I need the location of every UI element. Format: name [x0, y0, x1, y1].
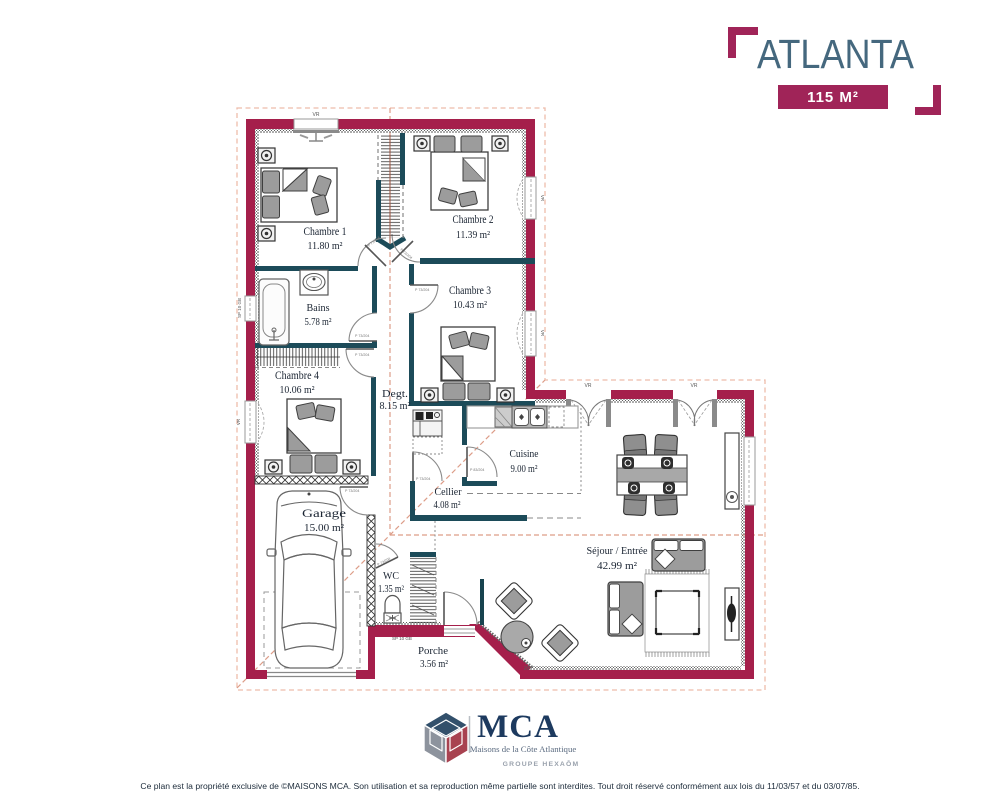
svg-text:VR: VR [691, 383, 698, 389]
svg-text:Cellier: Cellier [435, 486, 462, 498]
svg-text:10.06 m²: 10.06 m² [280, 384, 316, 396]
svg-text:1.35 m²: 1.35 m² [378, 584, 404, 595]
svg-text:VR: VR [585, 383, 592, 389]
svg-text:Degt.: Degt. [382, 388, 408, 400]
svg-text:Ce plan est la propriété exclu: Ce plan est la propriété exclusive de ©M… [140, 781, 859, 791]
svg-text:P 73/204: P 73/204 [345, 489, 359, 493]
svg-text:P 73/204: P 73/204 [355, 353, 369, 357]
svg-text:Porche: Porche [418, 645, 448, 657]
svg-text:Bains: Bains [307, 302, 330, 314]
svg-text:VR: VR [313, 112, 320, 118]
svg-text:VR: VR [540, 330, 545, 337]
svg-text:8.15 m²: 8.15 m² [380, 401, 411, 412]
svg-text:Maisons de la Côte Atlantique: Maisons de la Côte Atlantique [470, 744, 577, 754]
svg-text:VR: VR [236, 418, 241, 425]
svg-text:GROUPE HEXAŌM: GROUPE HEXAŌM [503, 760, 580, 768]
svg-text:4.08 m²: 4.08 m² [434, 500, 461, 511]
svg-text:42.99 m²: 42.99 m² [597, 561, 637, 572]
svg-text:Séjour / Entrée: Séjour / Entrée [587, 545, 648, 557]
svg-text:P 73/204: P 73/204 [416, 477, 430, 481]
svg-text:SP 10 GB: SP 10 GB [392, 636, 412, 641]
svg-text:Chambre 2: Chambre 2 [453, 212, 494, 226]
svg-text:Chambre 1: Chambre 1 [304, 224, 347, 238]
svg-text:P 73/204: P 73/204 [415, 288, 429, 292]
svg-text:SP 10 GB: SP 10 GB [237, 298, 242, 318]
svg-text:15.00 m²: 15.00 m² [304, 522, 345, 534]
svg-text:10.43 m²: 10.43 m² [453, 299, 488, 311]
svg-text:VR: VR [540, 195, 545, 202]
svg-text:9.00 m²: 9.00 m² [511, 464, 538, 475]
svg-text:MCA: MCA [477, 709, 559, 745]
svg-text:Chambre 3: Chambre 3 [449, 283, 491, 297]
svg-text:Garage: Garage [302, 506, 346, 520]
svg-text:P 73/204: P 73/204 [355, 334, 369, 338]
svg-text:115 M²: 115 M² [807, 89, 859, 106]
svg-text:WC: WC [383, 570, 399, 582]
svg-text:11.80 m²: 11.80 m² [308, 240, 344, 252]
svg-text:Cuisine: Cuisine [510, 448, 539, 460]
svg-text:Chambre 4: Chambre 4 [275, 368, 319, 382]
svg-text:5.78 m²: 5.78 m² [305, 317, 332, 328]
svg-text:11.39 m²: 11.39 m² [456, 229, 491, 241]
svg-text:P 83/204: P 83/204 [470, 468, 484, 472]
svg-text:ATLANTA: ATLANTA [757, 31, 915, 77]
svg-text:3.56 m²: 3.56 m² [420, 659, 448, 670]
